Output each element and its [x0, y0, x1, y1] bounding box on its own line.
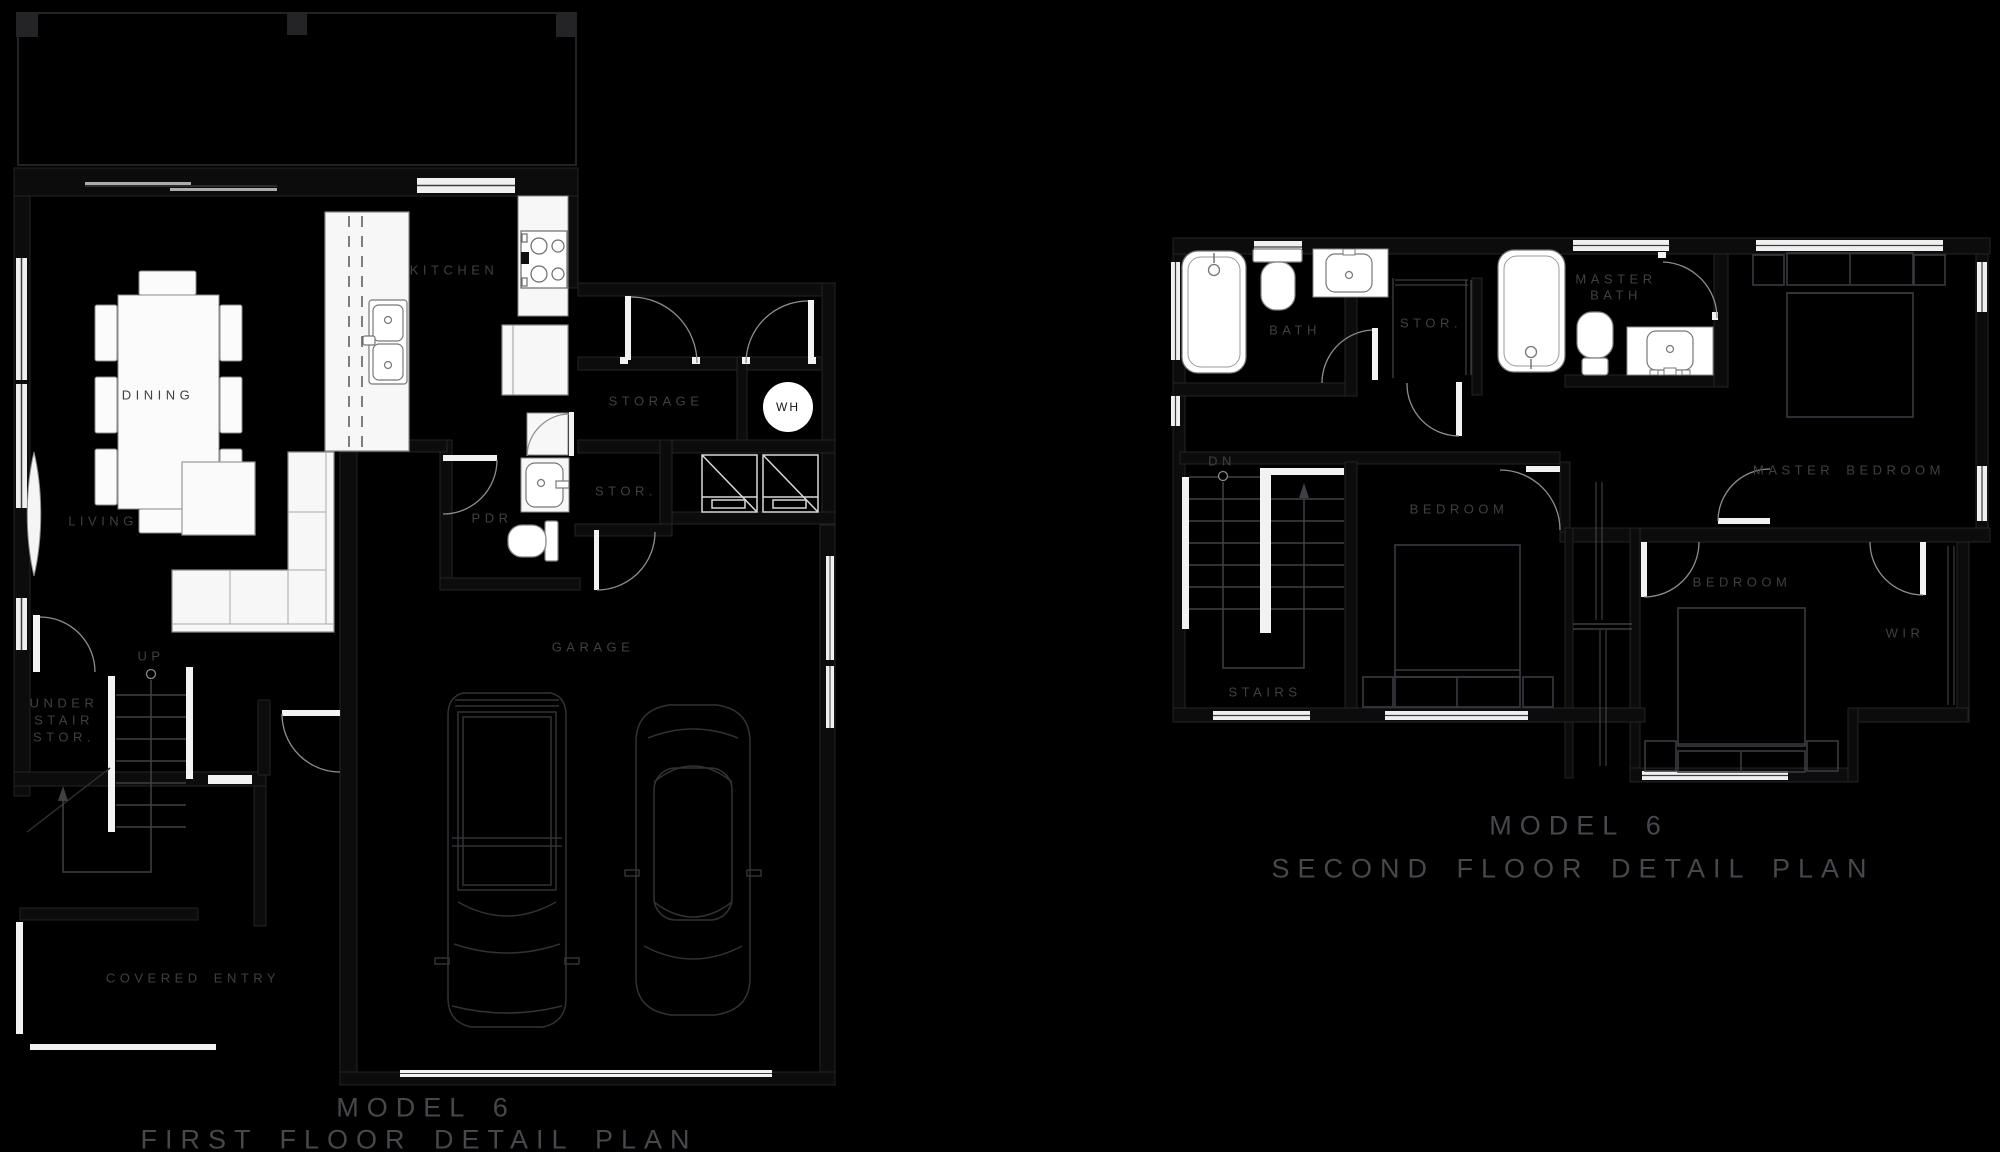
room-label-kitchen: KITCHEN [410, 263, 499, 278]
closet-unit [763, 455, 818, 512]
room-label-stor2: STOR. [1400, 316, 1462, 331]
dining-chair [139, 271, 196, 295]
window [1756, 240, 1943, 251]
door [1407, 382, 1462, 436]
bathtub [1498, 250, 1565, 372]
living-room [172, 452, 334, 632]
door [1870, 542, 1926, 595]
covered-entry-porch [16, 922, 216, 1050]
room-label-dining: DINING [122, 388, 195, 403]
hall-door [203, 775, 257, 784]
nightstand [1645, 741, 1676, 771]
first-floor-title-line1: MODEL 6 [336, 1093, 516, 1124]
front-door [33, 615, 95, 672]
door [1658, 252, 1718, 320]
storage-closet [1393, 278, 1471, 436]
room-label-storage: STORAGE [609, 394, 704, 409]
powder-room [443, 455, 569, 561]
room-label-pdr: PDR [472, 511, 513, 526]
rear-patio [16, 12, 576, 165]
nightstand [1523, 677, 1553, 707]
master-bathroom [1498, 250, 1718, 375]
room-label-garage: GARAGE [552, 640, 635, 655]
room-label-wir: WIR [1886, 626, 1925, 641]
nightstand [1914, 255, 1945, 285]
first-floor-plan [14, 12, 835, 1085]
closet-unit [702, 455, 757, 512]
island-sink [363, 300, 407, 384]
vanity-sink [521, 458, 569, 512]
door [1641, 542, 1699, 597]
window [826, 556, 834, 660]
bathtub [1182, 251, 1246, 373]
room-label-stor: STOR. [595, 484, 657, 499]
window [1171, 396, 1180, 426]
door [282, 710, 340, 772]
room-label-under-stair-stor-line1: UNDER [30, 696, 99, 711]
room-label-master-bath-line1: MASTER [1575, 272, 1656, 287]
vanity-sink [1627, 327, 1713, 375]
fridge [502, 325, 568, 395]
toilet [508, 521, 558, 561]
second-floor-title-line1: MODEL 6 [1489, 811, 1669, 842]
second-floor-plan [1171, 238, 1990, 782]
room-label-living: LIVING [68, 514, 138, 529]
stair-start-post [147, 670, 156, 679]
nightstand [1753, 255, 1784, 285]
cooktop [521, 231, 567, 288]
floor-plan-sheet: DINING KITCHEN LIVING UP UNDER STAIR STO… [0, 0, 2000, 1152]
room-label-master-bath-line2: BATH [1590, 288, 1642, 303]
toilet [1253, 249, 1302, 310]
stair-label-up: UP [137, 649, 164, 664]
room-label-stairs: STAIRS [1229, 685, 1302, 700]
window [826, 666, 834, 728]
dining-chair [95, 305, 117, 361]
door [746, 300, 814, 363]
stair-start-post [1219, 472, 1228, 481]
nightstand [1807, 741, 1838, 771]
pickup-truck [435, 693, 579, 1027]
toilet [1577, 312, 1613, 375]
nightstand [1363, 677, 1393, 707]
dining-chair [220, 377, 242, 433]
room-label-bath: BATH [1269, 323, 1321, 338]
window [1385, 711, 1528, 720]
walk-in-robe [1870, 542, 1954, 705]
window [1171, 262, 1180, 360]
bedroom-left-bed [1363, 545, 1553, 707]
second-floor-title-line2: SECOND FLOOR DETAIL PLAN [1271, 854, 1874, 885]
kitchen-counter [502, 196, 574, 456]
linen-closets [1573, 482, 1632, 766]
door [625, 296, 697, 363]
room-label-bedroom-right: BEDROOM [1693, 575, 1792, 590]
dining-chair [95, 377, 117, 433]
coffee-table [182, 462, 255, 535]
room-label-covered-entry: COVERED ENTRY [106, 971, 280, 986]
kitchen-island [325, 212, 409, 451]
stair-label-dn: DN [1208, 454, 1236, 469]
dining-chair [95, 449, 117, 505]
dining-chair [220, 305, 242, 361]
window [417, 178, 515, 193]
room-label-under-stair-stor-line2: STAIR [34, 713, 94, 728]
master-bed [1753, 253, 1945, 417]
staircase-second [1182, 468, 1344, 668]
window [1977, 466, 1987, 521]
window [16, 598, 27, 650]
room-label-master-bedroom: MASTER BEDROOM [1753, 463, 1945, 478]
first-floor-title-line2: FIRST FLOOR DETAIL PLAN [140, 1125, 697, 1152]
garage-door [400, 1070, 772, 1077]
sedan-car [625, 705, 761, 1015]
door [1500, 466, 1560, 530]
hall-doors [620, 296, 816, 364]
bedroom-right-bed [1645, 608, 1838, 772]
window [16, 384, 27, 508]
room-label-under-stair-stor-line3: STOR. [33, 730, 95, 745]
water-heater-label: WH [776, 400, 800, 414]
window [1213, 711, 1310, 720]
window [16, 258, 27, 380]
vanity-sink [1313, 249, 1388, 297]
room-label-bedroom-left: BEDROOM [1410, 502, 1509, 517]
window [1977, 262, 1987, 312]
door [594, 530, 655, 590]
window [1573, 240, 1669, 251]
